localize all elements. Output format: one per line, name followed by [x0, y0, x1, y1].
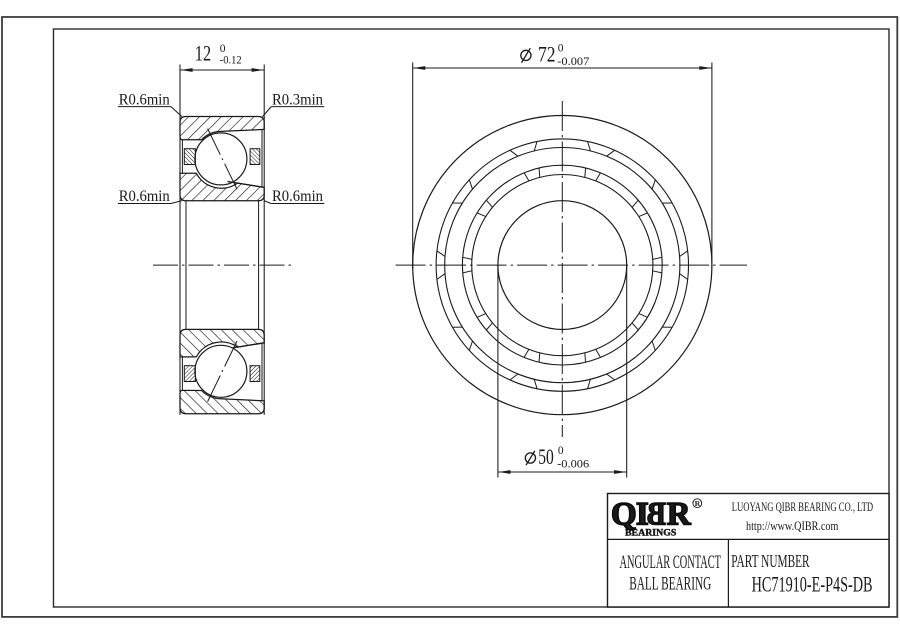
svg-text:R0.3min: R0.3min	[272, 91, 323, 108]
svg-text:0: 0	[558, 43, 564, 55]
svg-text:BALL BEARING: BALL BEARING	[629, 574, 711, 595]
svg-text:0: 0	[558, 445, 564, 457]
svg-text:R: R	[695, 499, 701, 508]
svg-text:72: 72	[538, 41, 556, 66]
svg-text:0: 0	[220, 43, 226, 55]
svg-text:HC71910-E-P4S-DB: HC71910-E-P4S-DB	[752, 571, 873, 596]
svg-text:-0.12: -0.12	[220, 54, 242, 66]
svg-text:R0.6min: R0.6min	[119, 188, 170, 205]
svg-text:PART NUMBER: PART NUMBER	[731, 551, 809, 571]
svg-text:R0.6min: R0.6min	[119, 91, 170, 108]
svg-text:http://www.QIBR.com: http://www.QIBR.com	[746, 519, 839, 533]
svg-text:BEARINGS: BEARINGS	[625, 528, 676, 538]
svg-text:50: 50	[538, 444, 554, 469]
svg-text:-0.007: -0.007	[557, 56, 589, 68]
svg-text:12: 12	[195, 40, 211, 65]
svg-text:ANGULAR CONTACT: ANGULAR CONTACT	[620, 552, 722, 573]
svg-text:R0.6min: R0.6min	[272, 188, 323, 205]
svg-text:LUOYANG QIBR BEARING CO., LTD: LUOYANG QIBR BEARING CO., LTD	[732, 500, 873, 514]
svg-text:-0.006: -0.006	[557, 459, 589, 471]
